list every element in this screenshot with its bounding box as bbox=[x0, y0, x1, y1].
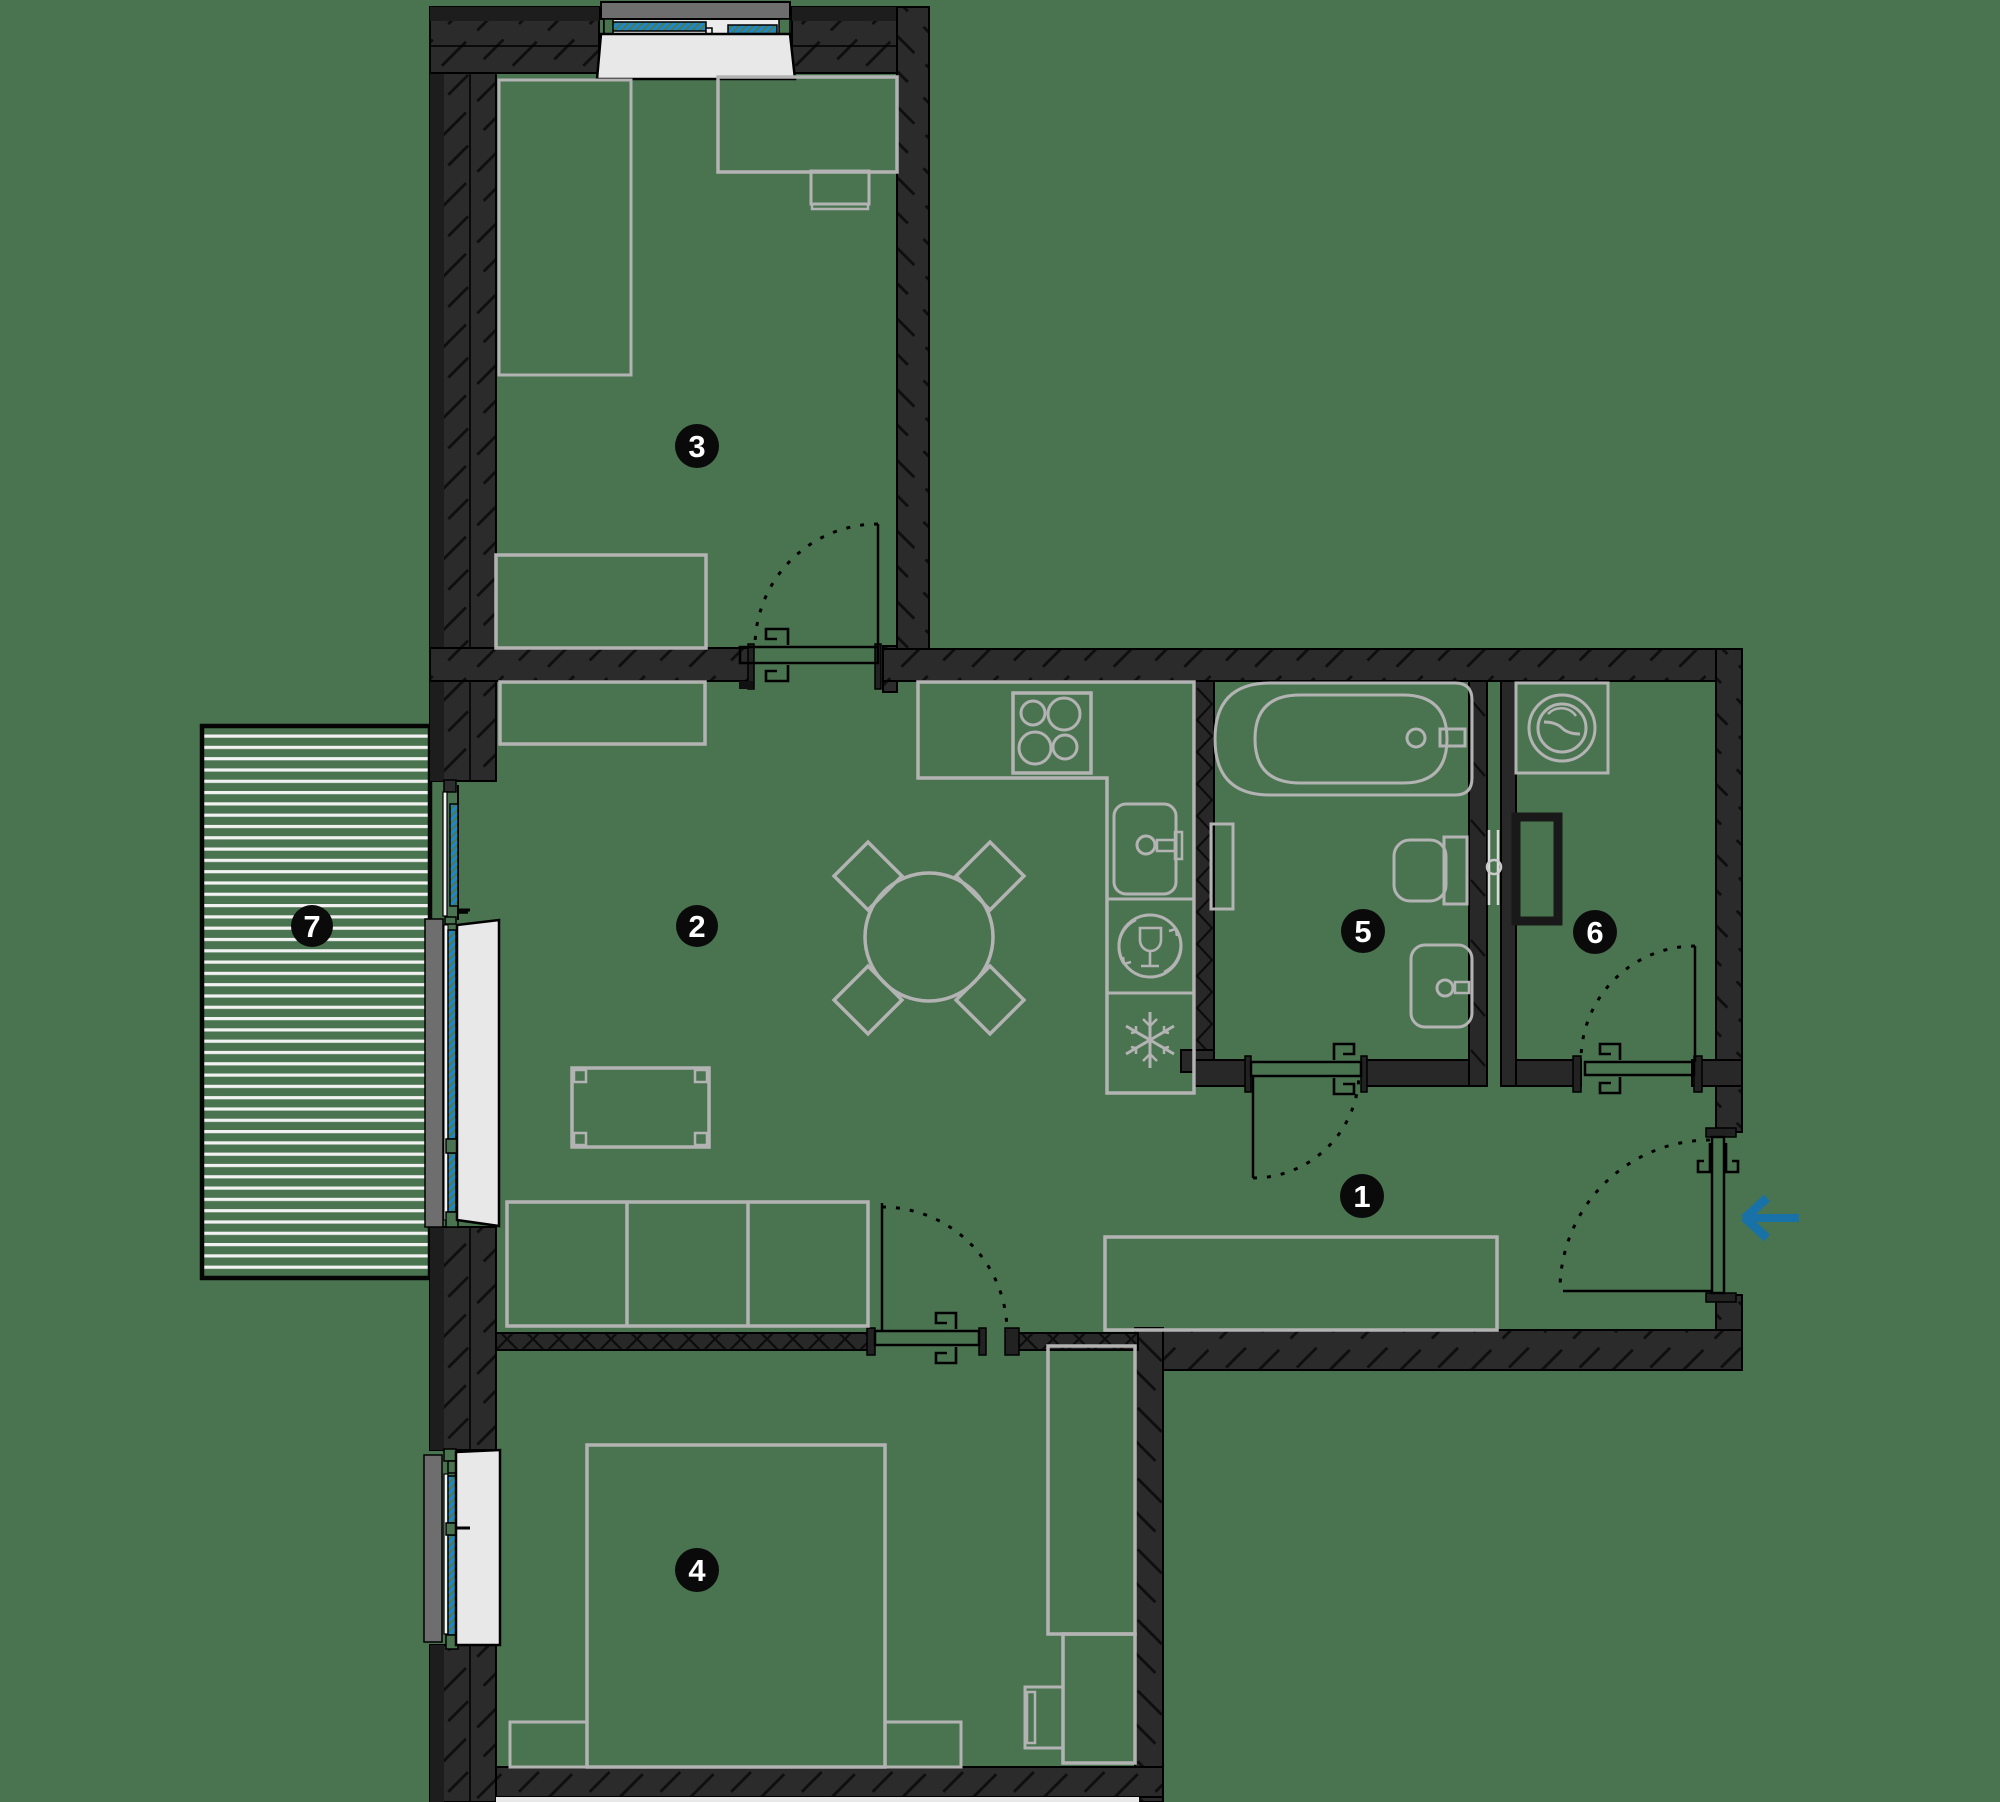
svg-text:4: 4 bbox=[688, 1553, 706, 1588]
svg-text:3: 3 bbox=[688, 429, 705, 464]
svg-text:7: 7 bbox=[303, 909, 320, 944]
svg-text:5: 5 bbox=[1354, 914, 1371, 949]
svg-text:2: 2 bbox=[688, 909, 705, 944]
svg-text:1: 1 bbox=[1353, 1179, 1370, 1214]
svg-text:6: 6 bbox=[1586, 915, 1603, 950]
